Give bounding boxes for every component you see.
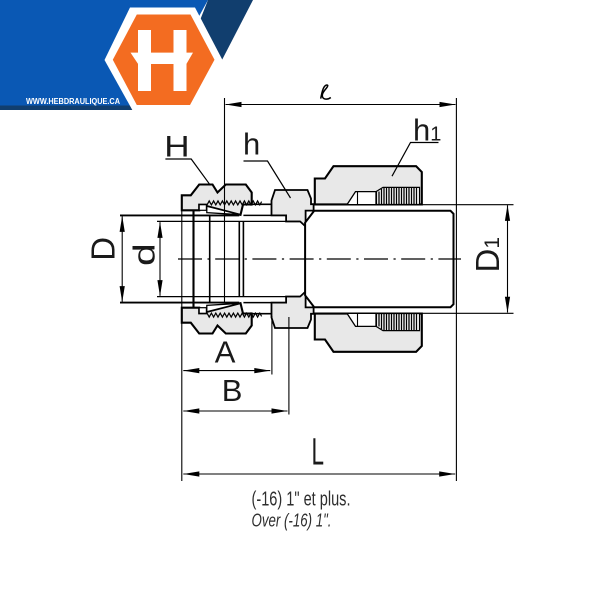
svg-text:Over (-16) 1".: Over (-16) 1". <box>252 511 332 531</box>
svg-text:h: h <box>243 127 260 162</box>
svg-text:B: B <box>222 373 243 408</box>
svg-text:A: A <box>215 335 236 370</box>
svg-text:H: H <box>164 129 189 163</box>
svg-text:D: D <box>85 237 122 261</box>
svg-text:WWW.HEBDRAULIQUE.CA: WWW.HEBDRAULIQUE.CA <box>26 96 120 106</box>
svg-text:d: d <box>126 243 161 266</box>
svg-text:(-16) 1" et plus.: (-16) 1" et plus. <box>252 489 351 511</box>
svg-text:L: L <box>312 432 325 474</box>
